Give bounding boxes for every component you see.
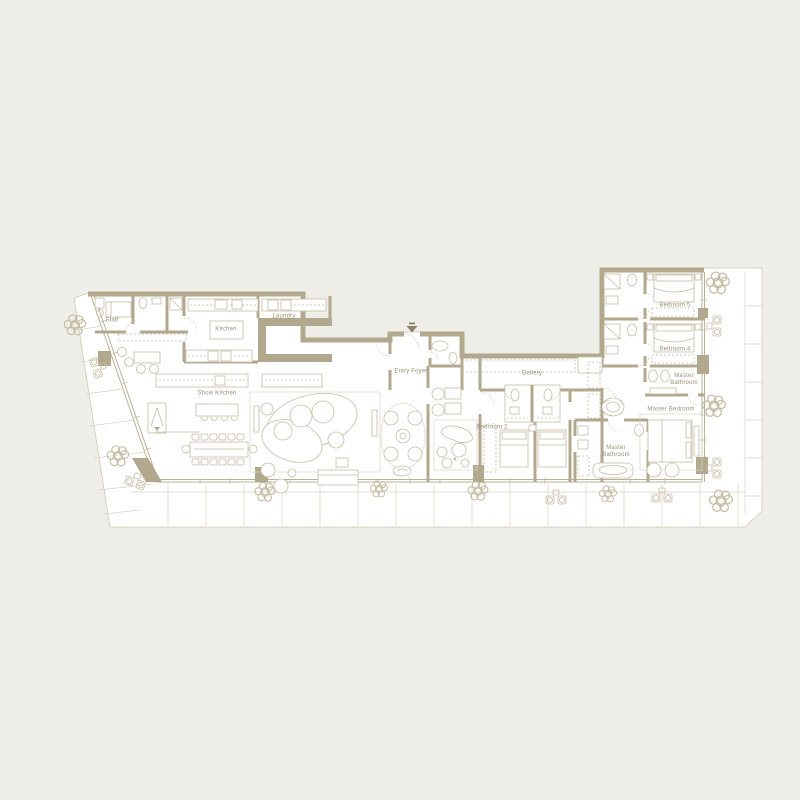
room-label-gallery: Gallery — [522, 370, 542, 377]
room-label-bedroom-2: Bedroom 2 — [476, 424, 507, 431]
floor-plan-drawing — [0, 0, 800, 800]
room-label-entry-foyer: Entry Foyer — [394, 368, 427, 375]
room-label-staff: Staff — [105, 317, 118, 324]
room-label-master-bathroom-west: Master Bathroom — [599, 445, 633, 459]
room-label-master-bathroom-east: Master Bathroom — [667, 373, 701, 387]
floor-plan-page: Staff Kitchen Laundry Show Kitchen Entry… — [0, 0, 800, 800]
entry-arrow-icon — [407, 323, 418, 333]
room-label-laundry: Laundry — [272, 313, 295, 320]
room-label-show-kitchen: Show Kitchen — [197, 390, 236, 397]
room-label-master-bedroom: Master Bedroom — [647, 406, 694, 413]
room-label-bedroom-4: Bedroom 4 — [659, 346, 690, 353]
room-label-kitchen: Kitchen — [215, 326, 236, 333]
room-label-bedroom-5: Bedroom 5 — [659, 302, 690, 309]
